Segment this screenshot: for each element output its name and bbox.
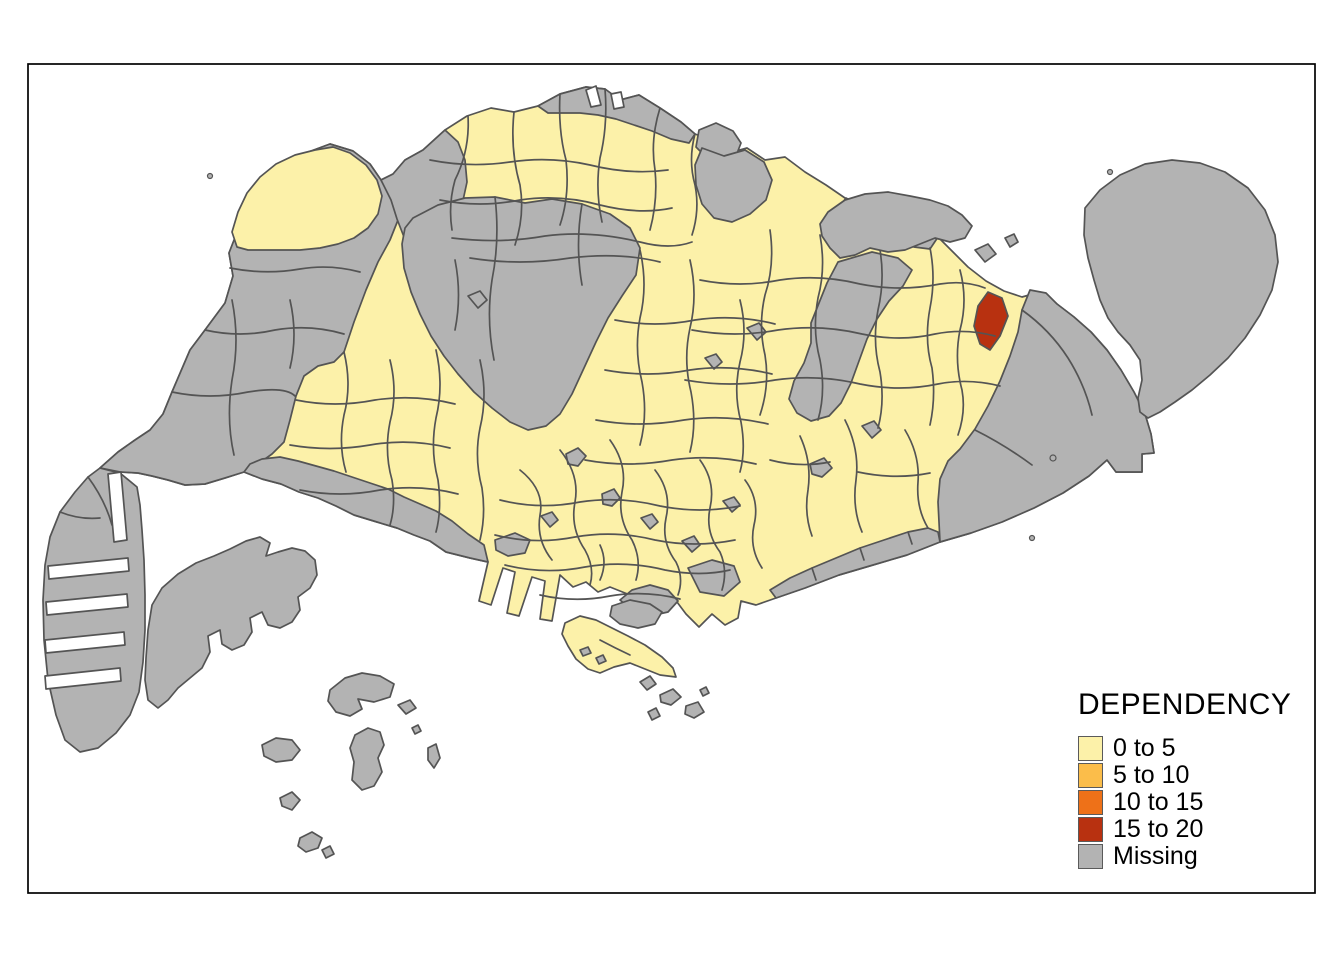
- figure-canvas: { "legend": { "title": "DEPENDENCY", "it…: [0, 0, 1344, 960]
- legend-item-label: 15 to 20: [1113, 815, 1203, 844]
- map-legend: DEPENDENCY 0 to 5 5 to 10 10 to 15 15 to…: [1078, 688, 1291, 870]
- legend-swatch: [1078, 790, 1103, 815]
- legend-swatch: [1078, 817, 1103, 842]
- legend-item: 5 to 10: [1078, 762, 1291, 789]
- legend-item: Missing: [1078, 843, 1291, 870]
- legend-item: 15 to 20: [1078, 816, 1291, 843]
- legend-item-label: 10 to 15: [1113, 788, 1203, 817]
- shipyard-notch: [611, 92, 624, 109]
- islet-dot: [208, 174, 213, 179]
- legend-item-label: 5 to 10: [1113, 761, 1189, 790]
- islet-dot: [1108, 170, 1113, 175]
- legend-item: 0 to 5: [1078, 735, 1291, 762]
- legend-item-label: Missing: [1113, 842, 1198, 871]
- legend-item-label: 0 to 5: [1113, 734, 1176, 763]
- islet-dot: [1050, 455, 1056, 461]
- legend-swatch: [1078, 844, 1103, 869]
- legend-swatch: [1078, 763, 1103, 788]
- island-sudong: [262, 738, 300, 762]
- islet-dot: [1030, 536, 1035, 541]
- legend-item: 10 to 15: [1078, 789, 1291, 816]
- legend-title: DEPENDENCY: [1078, 688, 1291, 722]
- legend-swatch: [1078, 736, 1103, 761]
